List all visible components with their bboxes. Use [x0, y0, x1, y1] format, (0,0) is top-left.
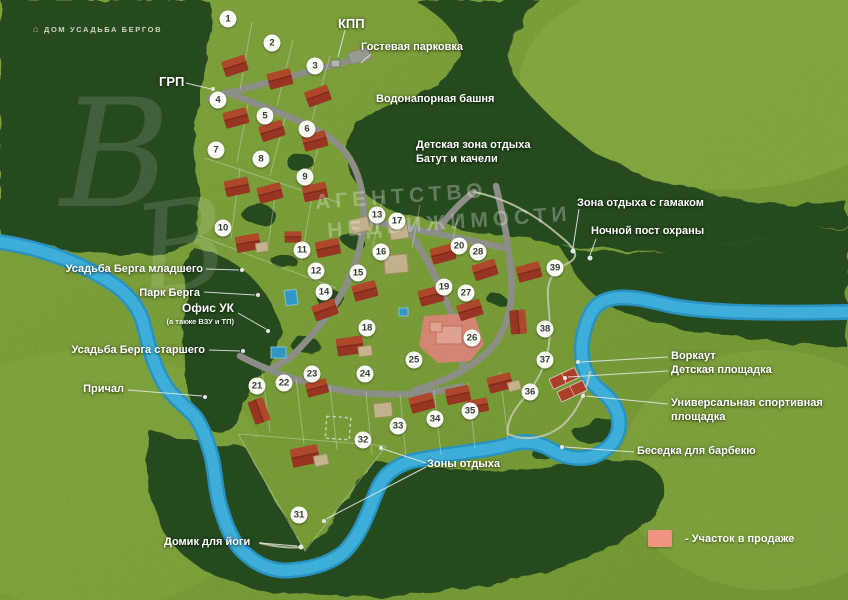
plot-badge-1[interactable]: 1 [220, 11, 237, 28]
brand-logo-text: ДОМ УСАДЬБА БЕРГОВ [44, 25, 162, 34]
plot-badge-23[interactable]: 23 [304, 366, 321, 383]
plot-badge-15[interactable]: 15 [350, 265, 367, 282]
plot-badge-7[interactable]: 7 [208, 142, 225, 159]
plot-badge-6[interactable]: 6 [299, 121, 316, 138]
plot-badge-24[interactable]: 24 [357, 366, 374, 383]
masterplan-map: В В АГЕНТСТВО НЕДВИЖИМОСТИ ⌂ ДОМ УСАДЬБА… [0, 0, 848, 600]
plot-badge-4[interactable]: 4 [210, 92, 227, 109]
plot-badge-21[interactable]: 21 [249, 378, 266, 395]
plot-badge-10[interactable]: 10 [215, 220, 232, 237]
plot-badge-37[interactable]: 37 [537, 352, 554, 369]
plot-badge-2[interactable]: 2 [264, 35, 281, 52]
plot-badge-8[interactable]: 8 [253, 151, 270, 168]
plot-badge-11[interactable]: 11 [294, 242, 311, 259]
plot-badges: 1234567891011121314151617181920212223242… [0, 0, 848, 600]
plot-badge-28[interactable]: 28 [470, 244, 487, 261]
plot-badge-39[interactable]: 39 [547, 260, 564, 277]
plot-badge-35[interactable]: 35 [462, 403, 479, 420]
plot-badge-33[interactable]: 33 [390, 418, 407, 435]
plot-badge-9[interactable]: 9 [297, 169, 314, 186]
plot-badge-20[interactable]: 20 [451, 238, 468, 255]
plot-badge-34[interactable]: 34 [427, 411, 444, 428]
plot-badge-16[interactable]: 16 [373, 244, 390, 261]
legend: - Участок в продаже [648, 530, 794, 547]
plot-badge-13[interactable]: 13 [369, 207, 386, 224]
plot-badge-32[interactable]: 32 [355, 432, 372, 449]
plot-badge-18[interactable]: 18 [359, 320, 376, 337]
brand-logo: ⌂ ДОМ УСАДЬБА БЕРГОВ [33, 24, 162, 34]
legend-label: - Участок в продаже [685, 533, 794, 545]
plot-badge-19[interactable]: 19 [436, 279, 453, 296]
plot-badge-31[interactable]: 31 [291, 507, 308, 524]
plot-badge-14[interactable]: 14 [316, 284, 333, 301]
plot-badge-12[interactable]: 12 [308, 263, 325, 280]
plot-badge-5[interactable]: 5 [257, 108, 274, 125]
for-sale-swatch [648, 530, 672, 547]
plot-badge-3[interactable]: 3 [307, 58, 324, 75]
plot-badge-22[interactable]: 22 [276, 375, 293, 392]
plot-badge-27[interactable]: 27 [458, 285, 475, 302]
plot-badge-17[interactable]: 17 [389, 213, 406, 230]
plot-badge-36[interactable]: 36 [522, 384, 539, 401]
plot-badge-25[interactable]: 25 [406, 352, 423, 369]
plot-badge-38[interactable]: 38 [537, 321, 554, 338]
plot-badge-26[interactable]: 26 [464, 330, 481, 347]
home-icon: ⌂ [33, 24, 40, 34]
